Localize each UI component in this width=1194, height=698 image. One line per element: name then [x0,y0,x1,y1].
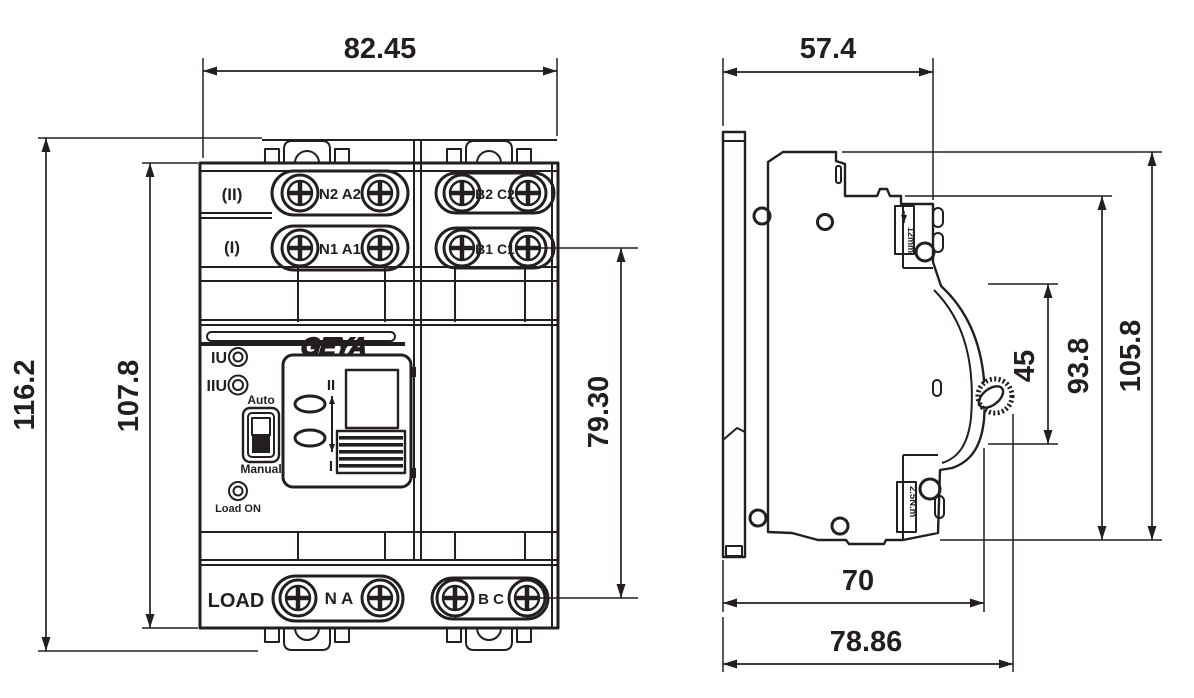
front-view: (II) N2 A2 B2 C2 (I) N1 A1 B1 C1 GE [200,140,558,650]
row-II-label: (II) [222,185,243,204]
torque-label: 2.5N.m [907,486,918,517]
torque-marking: 2.5N.m [897,482,918,532]
power-I-led-core [234,353,243,362]
load-on-label: Load ON [215,503,261,515]
drawing-canvas: (II) N2 A2 B2 C2 (I) N1 A1 B1 C1 GE [0,0,1194,698]
auto-label: Auto [247,393,274,407]
auto-manual-toggle [243,408,279,462]
dim-depth-body: 70 [842,565,874,597]
dim-height-body: 107.8 [113,360,145,433]
load-label: LOAD [208,590,265,612]
terminal-screw [362,580,398,616]
terminal-screw [282,230,318,266]
dim-width: 82.45 [344,33,417,65]
power-II-led [229,376,248,395]
row-I-label: (I) [224,238,240,257]
strip-length-marking: 12mm [895,206,916,254]
padlock-slot [295,430,325,446]
dim-height-overall-side: 105.8 [1115,320,1147,393]
terminal-screw [510,175,546,211]
dim-terminal-span: 79.30 [583,376,615,449]
dimension-drawing: (II) N2 A2 B2 C2 (I) N1 A1 B1 C1 GE [0,0,1194,698]
position-window [346,370,398,428]
plate-tick [411,367,416,377]
load-terminal-row: LOAD N A B C [208,576,548,621]
dim-height-rail: 93.8 [1063,338,1095,394]
handle-knob [975,379,1012,413]
dim-height-overall: 116.2 [9,360,41,431]
dim-depth-overall: 78.86 [830,626,903,658]
dim-handle-span: 45 [1009,350,1041,382]
led-I-label: IU [211,350,227,367]
bottom-terminal-clamps [265,628,531,650]
load-left-terminal-label: N A [325,589,354,608]
position-II-label: II [327,377,335,394]
row-I-left-terminal-label: N1 A1 [319,241,361,258]
terminal-screw [362,230,398,266]
manual-label: Manual [240,462,281,476]
switch-plate: II I [283,355,416,487]
plate-tick [411,468,416,478]
front-panel: GEYA IU IIU Auto Manual Load ON [200,332,416,515]
load-on-led [229,482,247,500]
row-II-left-terminal-label: N2 A2 [319,186,361,203]
terminal-screw [282,175,318,211]
terminal-screw [362,175,398,211]
terminal-row-I: (I) N1 A1 B1 C1 [224,226,554,270]
din-rail-clip [723,132,745,557]
manual-handle [337,431,405,473]
position-I-label: I [329,458,333,475]
terminal-row-II: (II) N2 A2 B2 C2 [222,171,554,215]
terminal-screw [280,580,316,616]
load-on-led-core [234,487,243,496]
top-terminal-clamps [265,141,531,163]
brand-logo: GEYA [300,333,368,361]
side-dimensions: 57.4 105.8 93.8 45 70 78.86 [723,33,1162,672]
dim-depth-top: 57.4 [800,33,856,65]
padlock-slot [295,396,325,412]
power-II-led-core [233,380,243,390]
led-II-label: IIU [207,378,227,395]
power-I-led [229,348,247,366]
strip-length-label: 12mm [906,227,916,253]
load-right-terminal-label: B C [478,591,504,608]
terminal-screw [437,580,473,616]
row-I-right-terminal-label: B1 C1 [475,241,515,257]
side-body-outline [768,152,985,544]
row-II-right-terminal-label: B2 C2 [475,186,515,202]
